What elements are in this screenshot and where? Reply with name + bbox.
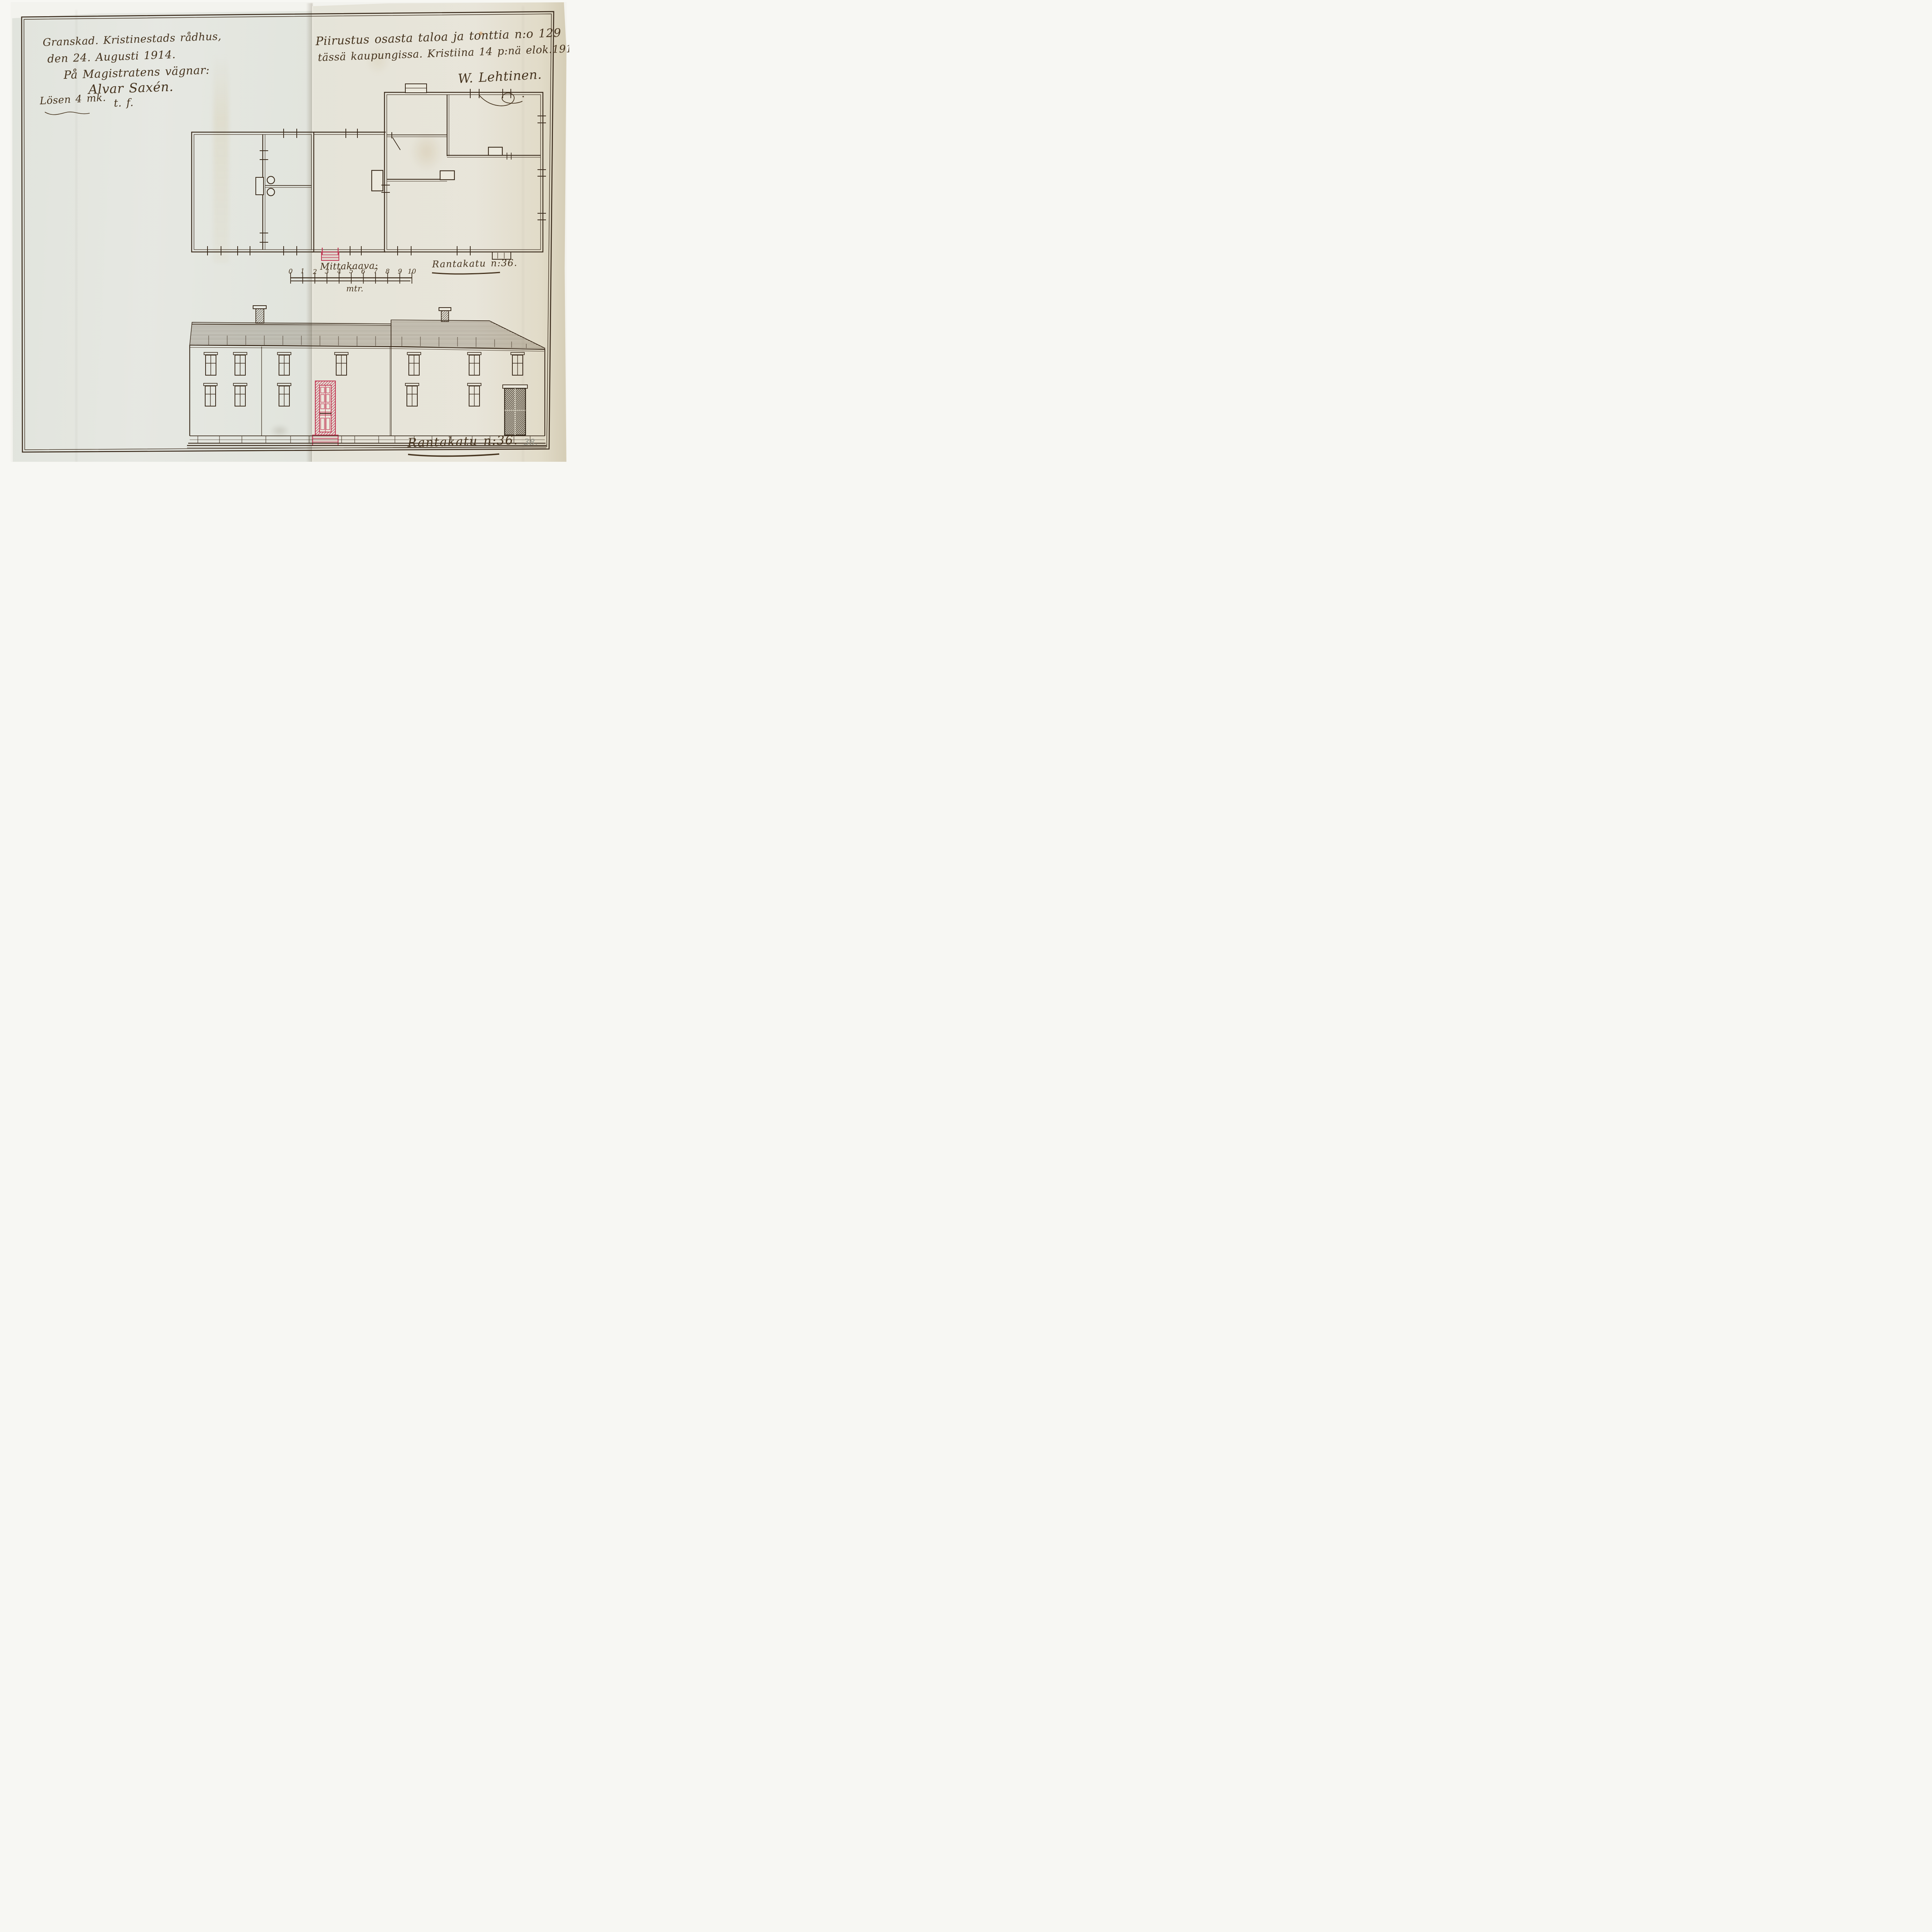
scale-tick-label: 6 xyxy=(361,268,366,276)
elevation xyxy=(187,306,546,448)
scale-tick-label: 8 xyxy=(386,268,390,276)
red-door-step xyxy=(313,435,338,446)
round-stove xyxy=(267,189,275,196)
scale-tick-label: 0 xyxy=(289,268,293,276)
scale-tick-label: 9 xyxy=(398,268,402,276)
chimney-right xyxy=(439,308,451,321)
door-swing xyxy=(393,138,400,150)
plan-stove xyxy=(488,147,502,155)
windows-lower-row xyxy=(204,383,481,406)
scanned-drawing-page: Granskad. Kristinestads rådhus, den 24. … xyxy=(0,0,569,462)
plan-label-underline xyxy=(432,272,500,274)
chimney-left xyxy=(253,306,266,323)
roof-left xyxy=(190,322,391,347)
plan-stove xyxy=(440,171,454,180)
street-label-plan: Rantakatu n:36. xyxy=(432,257,518,270)
windows-upper-row xyxy=(204,352,524,375)
signature-flourish xyxy=(479,93,522,106)
roof-right xyxy=(391,320,545,349)
scale-tick-label: 5 xyxy=(349,267,354,275)
facade xyxy=(190,345,545,436)
scale-tick-label: 10 xyxy=(408,268,416,276)
scale-tick-label: 2 xyxy=(313,268,317,276)
scale-bar-unit: mtr. xyxy=(346,284,364,293)
pencil-page-number: 38. xyxy=(524,437,538,447)
scale-tick-label: 7 xyxy=(374,267,378,275)
street-label-elevation: Rantakatu n:36. xyxy=(407,433,518,450)
plan-right-wing xyxy=(384,84,543,259)
plan-left-building xyxy=(192,132,314,252)
round-stove xyxy=(267,177,275,184)
floor-plan xyxy=(192,84,546,260)
fee-note-flourish xyxy=(45,112,90,115)
signature-suffix: t. f. xyxy=(114,97,134,109)
scale-tick-label: 4 xyxy=(337,268,342,276)
scale-tick-label: 1 xyxy=(301,267,305,275)
plan-middle-section xyxy=(311,132,386,252)
dark-cellar-door xyxy=(503,385,527,435)
elevation-label-underline xyxy=(408,454,499,456)
scale-tick-label: 3 xyxy=(325,268,329,276)
